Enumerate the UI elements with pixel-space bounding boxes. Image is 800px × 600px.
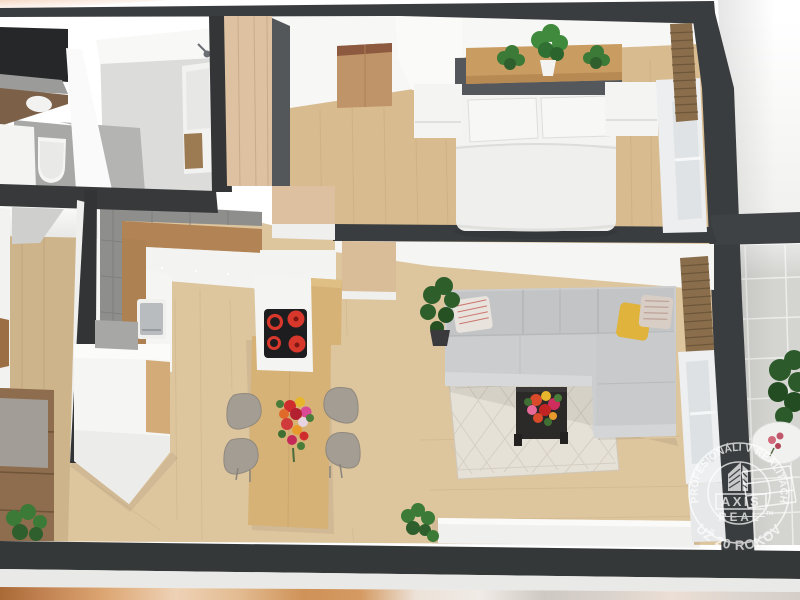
svg-text:REAL: REAL bbox=[718, 512, 761, 524]
svg-text:TM: TM bbox=[766, 511, 773, 517]
svg-text:AXIS: AXIS bbox=[721, 494, 761, 509]
